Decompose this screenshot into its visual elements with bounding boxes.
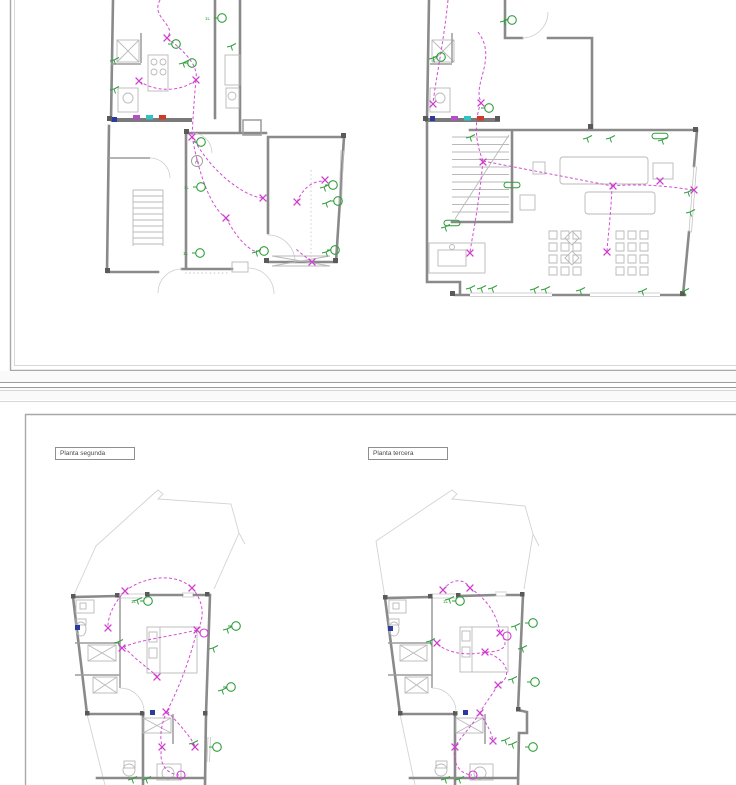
sheet-page-1: A 1L1L1L <box>0 0 736 371</box>
floorplan-planta-segunda: 1L <box>71 490 245 785</box>
living-room-furniture <box>520 157 673 275</box>
room-marker-label: A <box>195 160 199 166</box>
electrical-symbols <box>429 16 697 296</box>
sheet1-inner-border <box>14 0 736 366</box>
windows <box>117 593 211 762</box>
shower-box <box>432 40 454 62</box>
sheet1-outer-border <box>10 0 736 371</box>
sheet-page-2: 1L <box>0 400 736 785</box>
floorplan-top-right <box>423 0 698 298</box>
stairs <box>133 190 163 246</box>
walls <box>73 595 210 785</box>
threshold <box>232 262 248 272</box>
roof-outline <box>376 490 539 785</box>
stairs <box>452 135 509 219</box>
bathroom-fixtures <box>118 88 138 112</box>
svg-text:1L: 1L <box>183 251 189 256</box>
circuit-wiring <box>108 578 202 775</box>
walls <box>107 0 344 272</box>
electrical-symbols: 1L <box>75 585 240 784</box>
walls <box>385 595 527 785</box>
svg-text:1L: 1L <box>184 185 190 190</box>
door-arcs <box>432 688 456 712</box>
door-arcs <box>522 12 548 38</box>
page-gap <box>0 371 736 400</box>
svg-text:1L: 1L <box>205 16 211 21</box>
partitions <box>388 597 485 744</box>
sheet1-canvas: A 1L1L1L <box>0 0 736 371</box>
plan-label-planta-segunda: Planta segunda <box>55 447 135 460</box>
wall-posts <box>383 592 525 716</box>
electrical-symbols: 1L1L1L <box>110 14 342 266</box>
wall-posts <box>423 116 698 296</box>
circuit-wiring <box>437 581 507 775</box>
partitions <box>75 597 173 744</box>
kitchen-counter <box>429 243 485 273</box>
svg-text:1L: 1L <box>131 599 137 604</box>
floorplan-top-left: A 1L1L1L <box>105 0 346 294</box>
bed <box>147 627 197 673</box>
page-gap-band <box>0 382 736 388</box>
electrical-symbols: 1L <box>388 585 539 784</box>
sill-dotted <box>185 170 311 273</box>
wall-posts <box>105 116 346 273</box>
drawing-viewer: A 1L1L1L <box>0 0 736 785</box>
partitions <box>107 33 261 158</box>
wall-posts <box>71 592 210 716</box>
page2-top-edge <box>0 390 736 391</box>
shower-box <box>117 40 139 62</box>
plan-label-planta-tercera: Planta tercera <box>368 447 448 460</box>
door-arcs <box>120 688 144 712</box>
floorplan-planta-tercera: 1L <box>376 490 539 785</box>
